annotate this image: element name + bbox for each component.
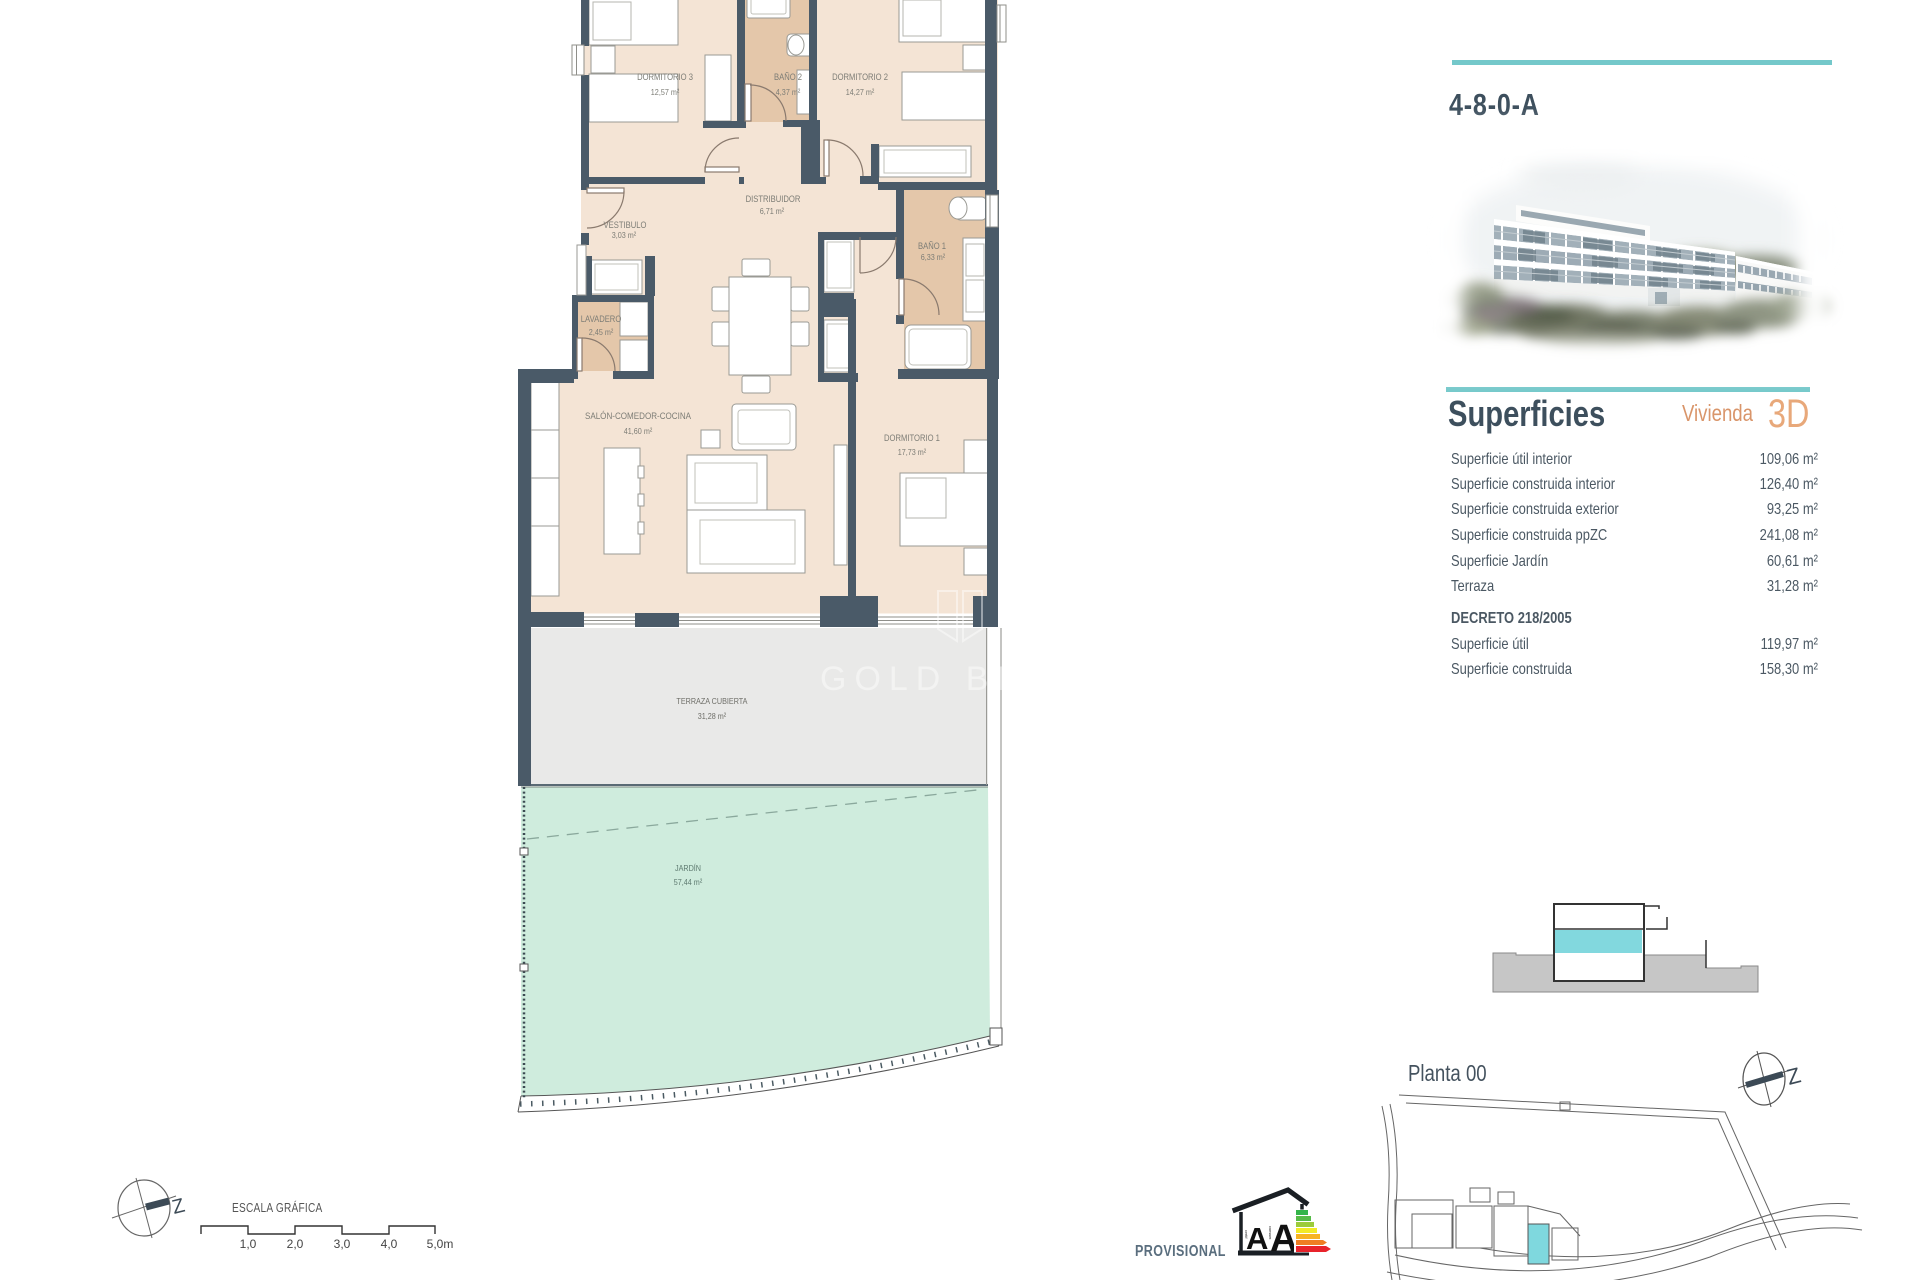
svg-text:158,30 m²: 158,30 m² <box>1760 661 1818 679</box>
svg-text:93,25 m²: 93,25 m² <box>1767 501 1818 519</box>
svg-text:2,0: 2,0 <box>287 1237 304 1251</box>
svg-text:3D: 3D <box>1768 391 1809 436</box>
svg-text:41,60 m²: 41,60 m² <box>624 426 653 436</box>
svg-text:PROVISIONAL: PROVISIONAL <box>1135 1242 1226 1260</box>
svg-text:2,45 m²: 2,45 m² <box>589 327 614 337</box>
svg-text:DECRETO 218/2005: DECRETO 218/2005 <box>1451 610 1572 628</box>
svg-text:14,27 m²: 14,27 m² <box>846 87 875 97</box>
svg-text:Superficie construida ppZC: Superficie construida ppZC <box>1451 527 1607 545</box>
svg-text:6,71 m²: 6,71 m² <box>760 206 785 216</box>
svg-text:JARDÍN: JARDÍN <box>675 863 701 873</box>
svg-text:17,73 m²: 17,73 m² <box>898 447 927 457</box>
svg-text:3,03 m²: 3,03 m² <box>612 230 637 240</box>
svg-text:Superficies: Superficies <box>1448 393 1605 434</box>
svg-text:Terraza: Terraza <box>1451 578 1495 596</box>
svg-text:Vivienda: Vivienda <box>1682 401 1753 426</box>
svg-text:6,33 m²: 6,33 m² <box>921 252 946 262</box>
svg-text:Z: Z <box>170 1195 187 1219</box>
svg-text:TERRAZA CUBIERTA: TERRAZA CUBIERTA <box>676 696 748 706</box>
svg-text:31,28 m²: 31,28 m² <box>698 711 727 721</box>
svg-text:3,0: 3,0 <box>334 1237 351 1251</box>
svg-text:Superficie construida: Superficie construida <box>1451 661 1573 679</box>
svg-text:126,40 m²: 126,40 m² <box>1760 476 1818 494</box>
svg-text:5,0m: 5,0m <box>427 1237 454 1251</box>
svg-text:4,0: 4,0 <box>381 1237 398 1251</box>
svg-text:DORMITORIO 2: DORMITORIO 2 <box>832 71 888 82</box>
svg-text:12,57 m²: 12,57 m² <box>651 87 680 97</box>
svg-text:1,0: 1,0 <box>240 1237 257 1251</box>
svg-text:VESTIBULO: VESTIBULO <box>604 219 647 230</box>
svg-text:4-8-0-A: 4-8-0-A <box>1449 86 1540 121</box>
svg-text:241,08 m²: 241,08 m² <box>1760 527 1818 545</box>
svg-text:certif: certif <box>1244 1230 1248 1239</box>
svg-text:57,44 m²: 57,44 m² <box>674 877 703 887</box>
svg-text:119,97 m²: 119,97 m² <box>1761 636 1818 654</box>
svg-text:LAVADERO: LAVADERO <box>581 313 622 324</box>
svg-text:DORMITORIO 3: DORMITORIO 3 <box>637 71 693 82</box>
svg-text:Superficie construida exterior: Superficie construida exterior <box>1451 501 1619 519</box>
svg-text:Superficie útil interior: Superficie útil interior <box>1451 451 1572 469</box>
svg-text:BAÑO 1: BAÑO 1 <box>918 240 946 251</box>
svg-text:Planta 00: Planta 00 <box>1408 1061 1487 1086</box>
svg-text:DORMITORIO 1: DORMITORIO 1 <box>884 432 940 443</box>
svg-text:4,37 m²: 4,37 m² <box>776 87 801 97</box>
svg-text:Superficie Jardín: Superficie Jardín <box>1451 553 1548 571</box>
svg-text:109,06 m²: 109,06 m² <box>1760 451 1818 469</box>
svg-text:A: A <box>1246 1221 1268 1256</box>
svg-text:Superficie útil: Superficie útil <box>1451 636 1529 654</box>
svg-text:consum: consum <box>1268 1226 1272 1239</box>
svg-text:DISTRIBUIDOR: DISTRIBUIDOR <box>746 193 801 204</box>
svg-text:A: A <box>1270 1218 1297 1260</box>
svg-text:BAÑO 2: BAÑO 2 <box>774 71 802 82</box>
svg-text:60,61 m²: 60,61 m² <box>1767 553 1818 571</box>
svg-text:GOLD BRI: GOLD BRI <box>820 660 1046 698</box>
svg-text:Z: Z <box>1784 1062 1803 1090</box>
svg-text:Superficie construida interior: Superficie construida interior <box>1451 476 1615 494</box>
svg-text:31,28 m²: 31,28 m² <box>1767 578 1818 596</box>
svg-text:SALÓN-COMEDOR-COCINA: SALÓN-COMEDOR-COCINA <box>585 410 691 421</box>
svg-text:ESCALA GRÁFICA: ESCALA GRÁFICA <box>232 1201 323 1215</box>
